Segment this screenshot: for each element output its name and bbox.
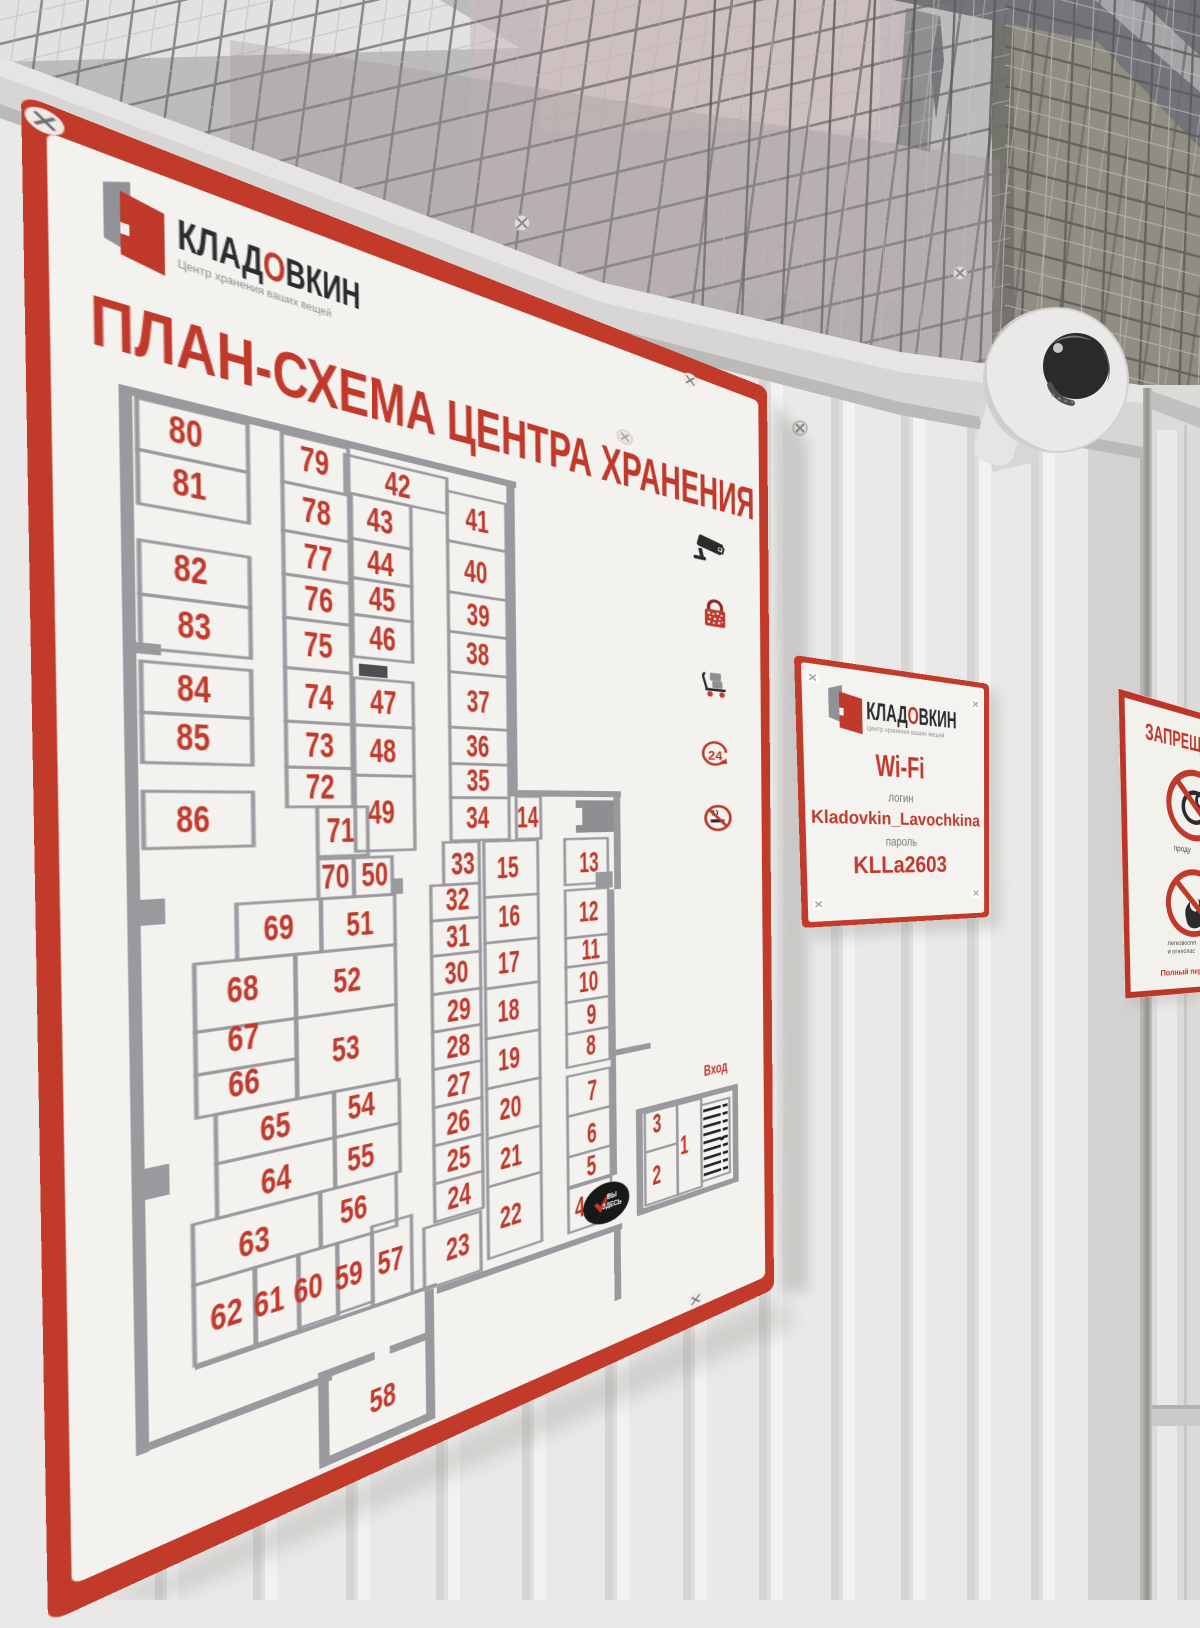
svg-text:65: 65 [260,1103,291,1150]
svg-text:54: 54 [348,1084,376,1128]
svg-text:84: 84 [177,666,211,711]
svg-text:4: 4 [575,1189,585,1224]
svg-text:56: 56 [340,1186,368,1232]
svg-text:35: 35 [467,762,490,798]
svg-text:проду: проду [1174,844,1191,854]
svg-text:41: 41 [465,500,488,540]
svg-text:79: 79 [300,438,329,484]
svg-text:47: 47 [370,682,397,722]
svg-text:39: 39 [467,596,490,635]
svg-text:48: 48 [370,731,397,770]
svg-text:логин: логин [888,790,913,805]
svg-text:32: 32 [446,880,470,917]
svg-text:29: 29 [447,990,471,1029]
svg-text:67: 67 [227,1015,259,1061]
svg-text:19: 19 [498,1039,520,1077]
svg-text:15: 15 [497,850,519,885]
svg-text:38: 38 [466,635,489,673]
svg-text:83: 83 [177,602,211,648]
svg-text:20: 20 [499,1088,521,1127]
svg-text:71: 71 [326,811,354,850]
svg-text:27: 27 [447,1064,471,1104]
svg-text:12: 12 [579,894,599,928]
svg-text:37: 37 [467,683,490,720]
svg-text:14: 14 [517,800,539,834]
svg-text:42: 42 [385,463,411,506]
svg-text:31: 31 [446,917,470,955]
svg-text:легковоспл: легковоспл [1167,939,1196,947]
svg-text:70: 70 [321,856,350,896]
svg-text:64: 64 [261,1155,292,1203]
svg-text:пароль: пароль [886,834,917,848]
svg-text:34: 34 [466,800,489,836]
svg-text:6: 6 [587,1115,597,1150]
svg-text:24: 24 [447,1175,471,1217]
svg-text:74: 74 [304,676,333,718]
svg-text:80: 80 [168,406,203,457]
svg-text:85: 85 [176,715,210,759]
svg-text:Wi-Fi: Wi-Fi [875,748,924,785]
svg-text:75: 75 [304,624,333,667]
svg-text:82: 82 [173,545,207,593]
svg-text:50: 50 [361,855,388,894]
svg-text:25: 25 [447,1138,471,1180]
svg-text:9: 9 [586,997,596,1031]
svg-text:18: 18 [497,991,519,1029]
svg-text:86: 86 [176,798,210,841]
svg-text:76: 76 [304,577,333,620]
svg-text:45: 45 [369,578,396,620]
svg-text:69: 69 [263,906,294,949]
svg-text:28: 28 [446,1026,470,1066]
svg-text:52: 52 [333,959,361,1001]
svg-text:7: 7 [587,1073,597,1107]
svg-text:36: 36 [466,728,489,764]
svg-text:43: 43 [367,499,394,542]
svg-text:77: 77 [304,535,333,579]
svg-text:68: 68 [227,966,259,1011]
svg-text:21: 21 [500,1136,522,1176]
svg-text:78: 78 [302,489,331,534]
svg-text:26: 26 [446,1101,470,1142]
svg-text:30: 30 [445,953,469,992]
svg-text:8: 8 [586,1028,596,1062]
svg-text:3: 3 [653,1107,662,1140]
svg-text:11: 11 [581,932,600,966]
svg-text:46: 46 [369,618,396,659]
svg-text:17: 17 [498,944,520,981]
svg-text:и огнеопас: и огнеопас [1167,947,1195,955]
svg-text:49: 49 [368,793,395,831]
svg-text:16: 16 [498,898,520,934]
svg-text:53: 53 [332,1027,360,1070]
svg-text:40: 40 [464,552,487,591]
svg-text:73: 73 [305,724,334,765]
svg-text:66: 66 [228,1059,260,1106]
svg-text:44: 44 [367,542,394,584]
svg-text:24: 24 [708,749,723,763]
svg-text:33: 33 [451,845,475,882]
svg-text:22: 22 [500,1195,522,1236]
svg-text:72: 72 [306,766,335,806]
svg-text:2: 2 [652,1158,661,1191]
svg-text:55: 55 [347,1135,375,1180]
svg-text:KLLa2603: KLLa2603 [853,851,947,878]
svg-text:5: 5 [586,1148,596,1183]
svg-text:51: 51 [346,903,374,943]
svg-text:81: 81 [172,459,206,509]
svg-text:10: 10 [579,964,599,999]
svg-text:1: 1 [680,1129,688,1161]
